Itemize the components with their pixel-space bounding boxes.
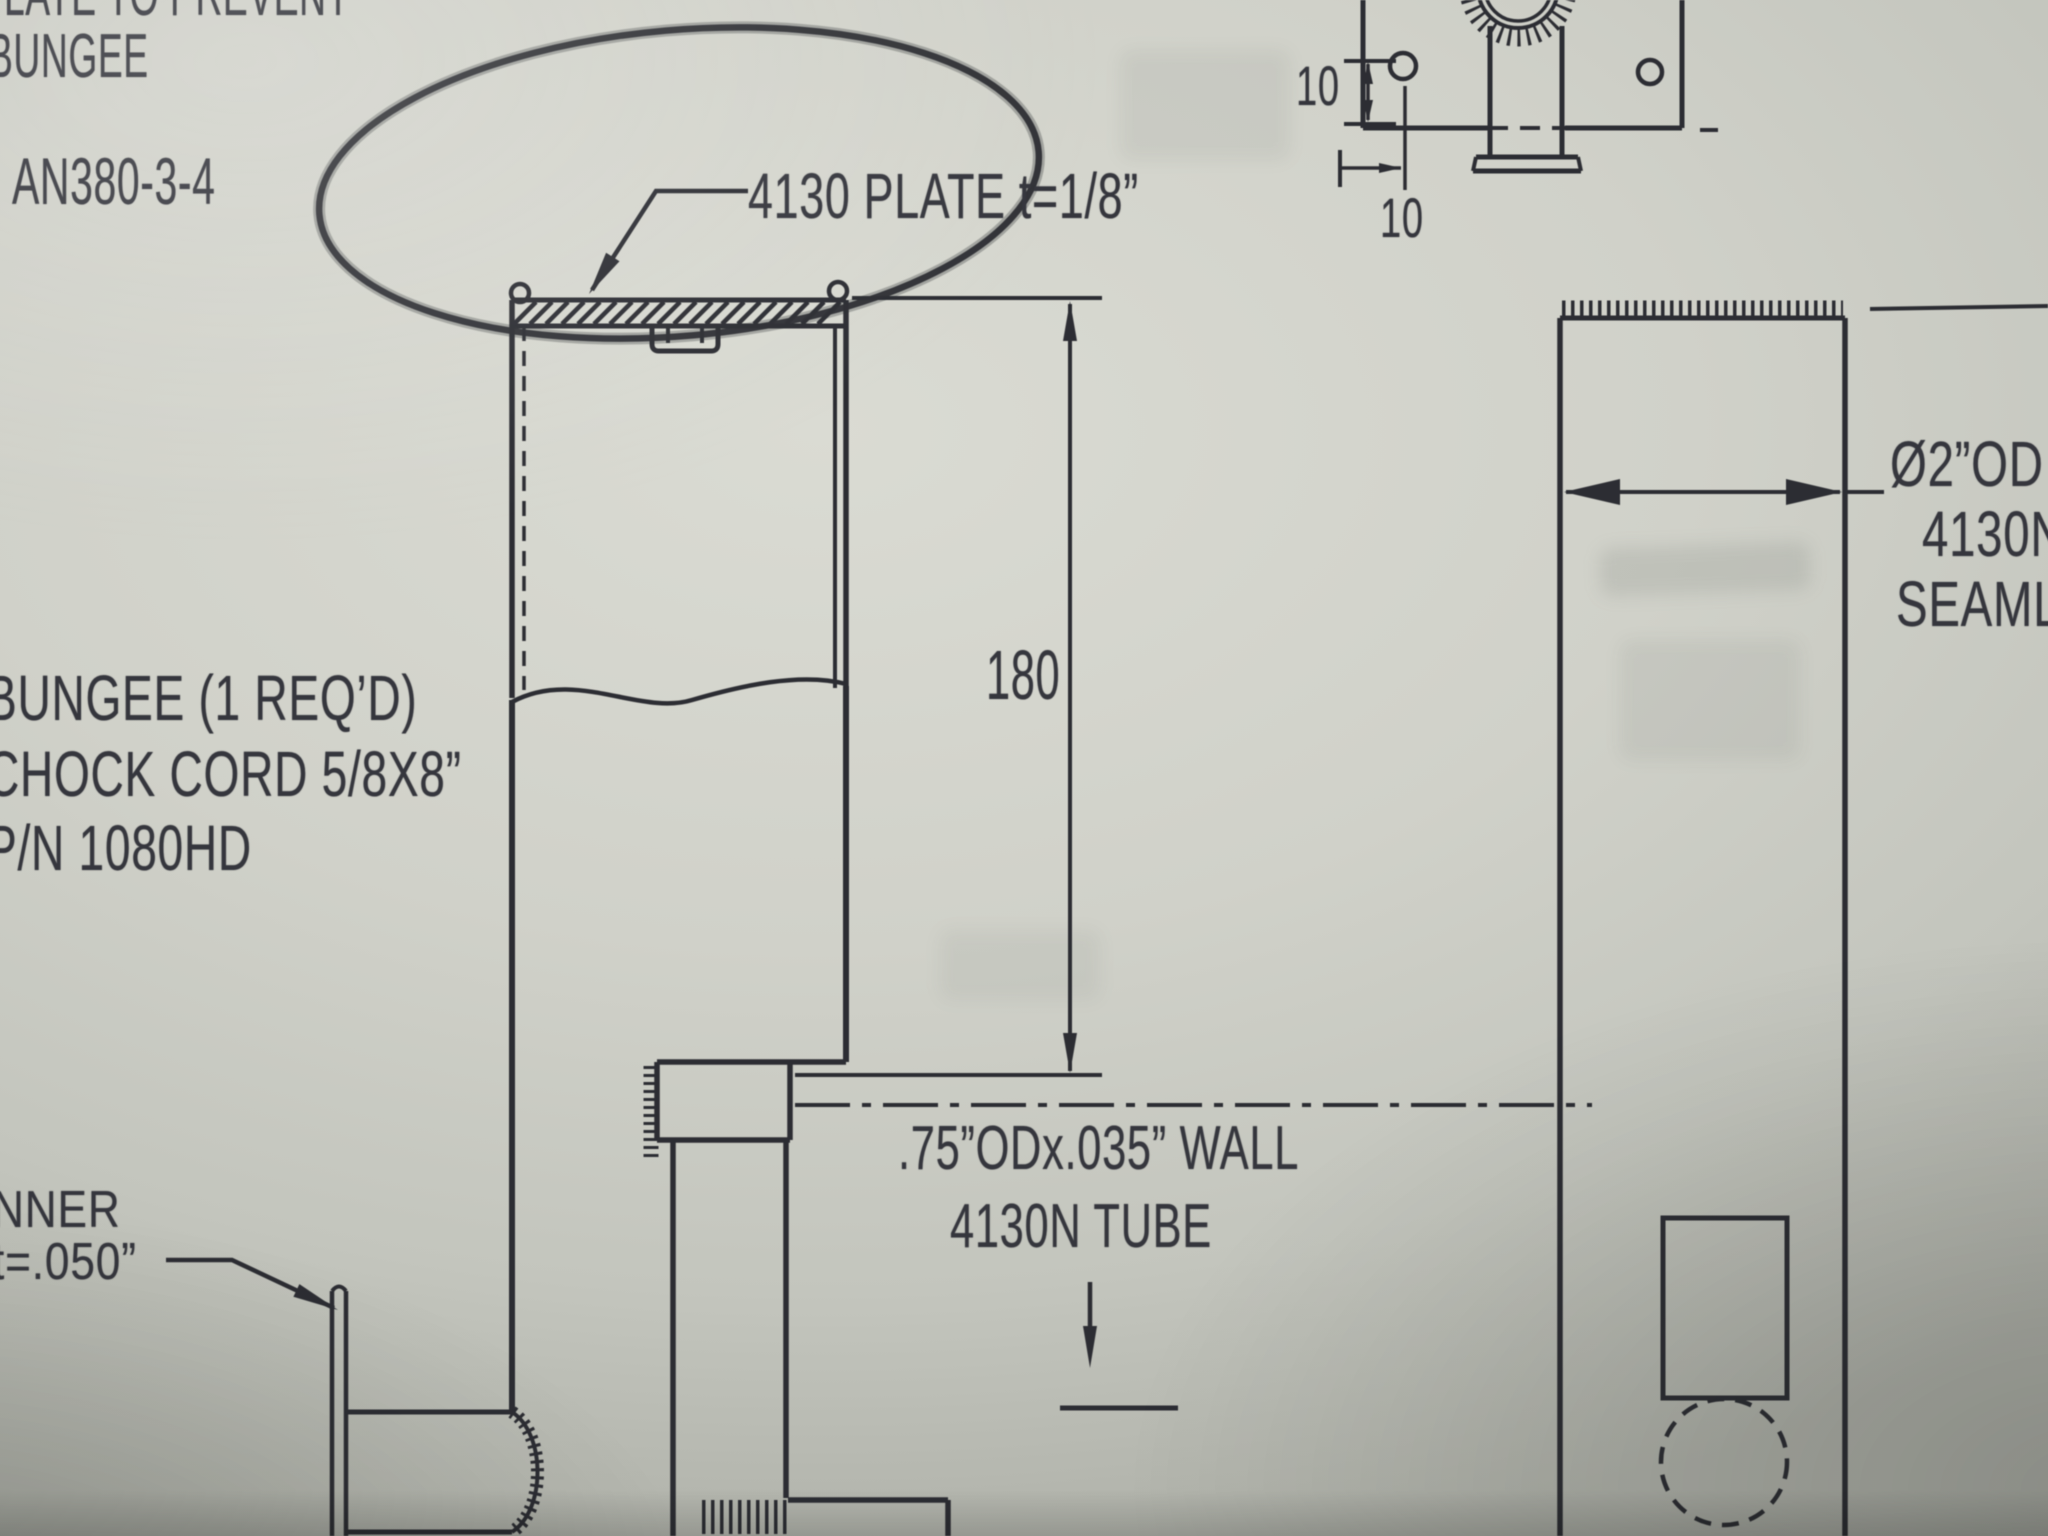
dimension-od2	[1564, 479, 1884, 505]
arrowhead	[1063, 1033, 1077, 1073]
liner-callout-line1: NNER	[0, 1184, 121, 1236]
break-line	[512, 679, 846, 703]
liner-callout-line2: t=.050”	[0, 1236, 137, 1288]
dim-10-horizontal-label: 10	[1380, 190, 1424, 246]
inner-tube-callout-line1: .75”ODx.035” WALL	[898, 1118, 1299, 1180]
arrowhead	[589, 253, 620, 294]
fastener-callout: AN380-3-4	[12, 148, 215, 214]
bracket-detail-view	[1340, 0, 1718, 190]
bolt-hole	[1390, 53, 1416, 79]
arrowhead	[1786, 479, 1842, 505]
outer-tube-callout-line2: 4130N	[1922, 502, 2048, 566]
strut-side-view	[332, 282, 948, 1536]
inner-tube-arrow	[1083, 1282, 1097, 1368]
photographed-blueprint: LATE TO PREVENT BUNGEE AN380-3-4 4130 PL…	[0, 0, 2048, 1536]
plate-corner-lobe	[829, 282, 847, 300]
liner-leader	[166, 1260, 338, 1310]
bungee-callout-line3: P/N 1080HD	[0, 816, 252, 880]
arrowhead	[1083, 1326, 1097, 1368]
plate-callout: 4130 PLATE t=1/8”	[748, 164, 1139, 228]
dim-180-label: 180	[986, 640, 1060, 710]
outer-tube-callout-line3: SEAMLE	[1896, 572, 2048, 636]
outer-tube-callout-line1: Ø2”OD	[1890, 432, 2044, 496]
arrowhead	[1379, 163, 1401, 173]
bolt-hole	[1638, 60, 1662, 84]
dim-10-vertical-label: 10	[1296, 58, 1340, 114]
bungee-callout-line1: BUNGEE (1 REQ’D)	[0, 666, 417, 730]
arrowhead	[1063, 301, 1077, 341]
plate-leader	[589, 191, 748, 294]
weld-serration	[512, 1412, 538, 1532]
dimension-10-vertical	[1344, 61, 1396, 124]
inner-tube-callout-line2: 4130N TUBE	[950, 1196, 1212, 1258]
arrowhead	[1564, 479, 1620, 505]
hidden-hole	[1661, 1399, 1787, 1525]
bungee-callout-line2: CHOCK CORD 5/8X8”	[0, 742, 462, 806]
inner-fitting	[1663, 1218, 1787, 1398]
top-note-line2: BUNGEE	[0, 26, 149, 88]
